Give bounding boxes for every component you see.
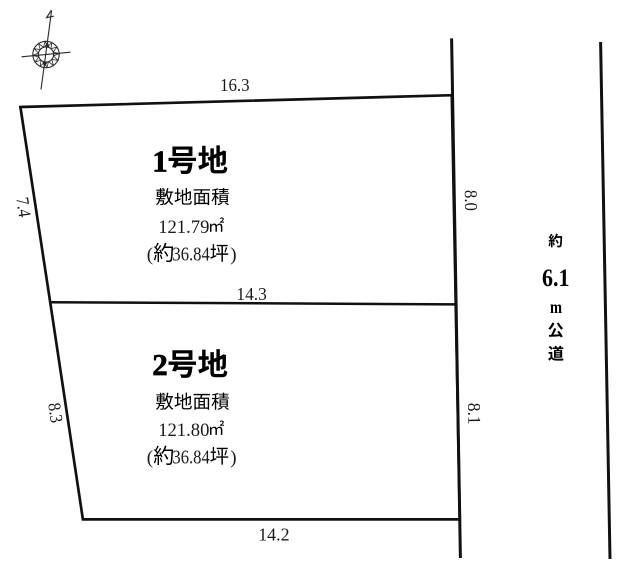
- svg-text:m: m: [550, 297, 562, 317]
- svg-text:16.3: 16.3: [220, 75, 250, 95]
- svg-text:14.2: 14.2: [258, 525, 289, 545]
- svg-text:): ): [230, 244, 236, 265]
- svg-text:8.3: 8.3: [44, 401, 67, 424]
- svg-text:8.0: 8.0: [461, 190, 481, 211]
- svg-text:14.3: 14.3: [236, 284, 266, 304]
- svg-text:36.84: 36.84: [172, 243, 209, 265]
- svg-text:1: 1: [152, 143, 168, 178]
- svg-text:2: 2: [152, 347, 168, 382]
- svg-text:7.4: 7.4: [12, 196, 35, 219]
- svg-text:(: (: [147, 244, 153, 265]
- svg-text:(: (: [147, 447, 153, 468]
- svg-text:6.1: 6.1: [542, 265, 570, 292]
- svg-text:): ): [230, 447, 236, 468]
- svg-text:121.79: 121.79: [158, 217, 209, 238]
- svg-text:8.1: 8.1: [464, 403, 484, 425]
- svg-text:36.84: 36.84: [172, 446, 209, 468]
- svg-text:121.80: 121.80: [158, 420, 209, 441]
